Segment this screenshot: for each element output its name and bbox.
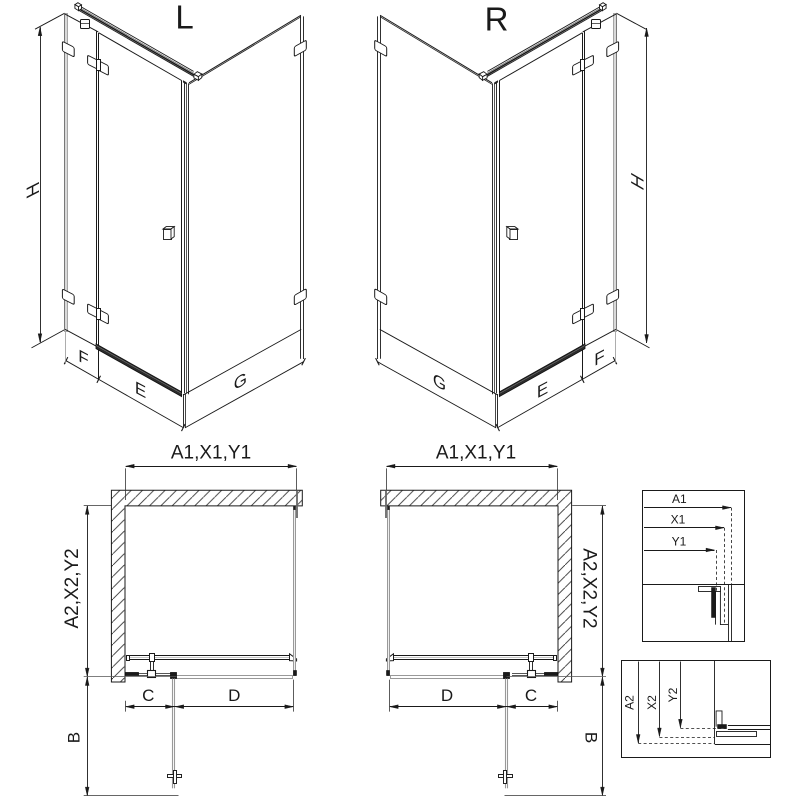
svg-text:H: H [628, 169, 648, 194]
svg-text:G: G [433, 369, 446, 396]
svg-text:E: E [135, 378, 146, 403]
svg-text:B: B [582, 732, 601, 743]
svg-text:D: D [441, 686, 453, 705]
svg-text:R: R [485, 1, 509, 38]
svg-text:F: F [594, 346, 604, 370]
svg-text:Y1: Y1 [672, 535, 687, 549]
svg-text:C: C [142, 686, 154, 705]
svg-text:A1,X1,Y1: A1,X1,Y1 [436, 443, 516, 464]
svg-text:D: D [228, 686, 240, 705]
svg-text:L: L [175, 0, 193, 36]
svg-text:G: G [234, 367, 247, 394]
svg-text:E: E [537, 378, 548, 403]
svg-text:A2,X2,Y2: A2,X2,Y2 [62, 548, 83, 628]
svg-text:B: B [65, 732, 84, 743]
svg-text:A2,X2,Y2: A2,X2,Y2 [579, 548, 600, 628]
svg-text:A1,X1,Y1: A1,X1,Y1 [171, 443, 251, 464]
svg-text:Y2: Y2 [666, 687, 680, 702]
svg-text:A2: A2 [623, 695, 637, 710]
svg-text:C: C [525, 686, 537, 705]
svg-text:A1: A1 [672, 492, 687, 506]
svg-text:F: F [78, 346, 88, 370]
svg-text:X1: X1 [671, 512, 686, 526]
svg-text:X2: X2 [645, 695, 659, 710]
